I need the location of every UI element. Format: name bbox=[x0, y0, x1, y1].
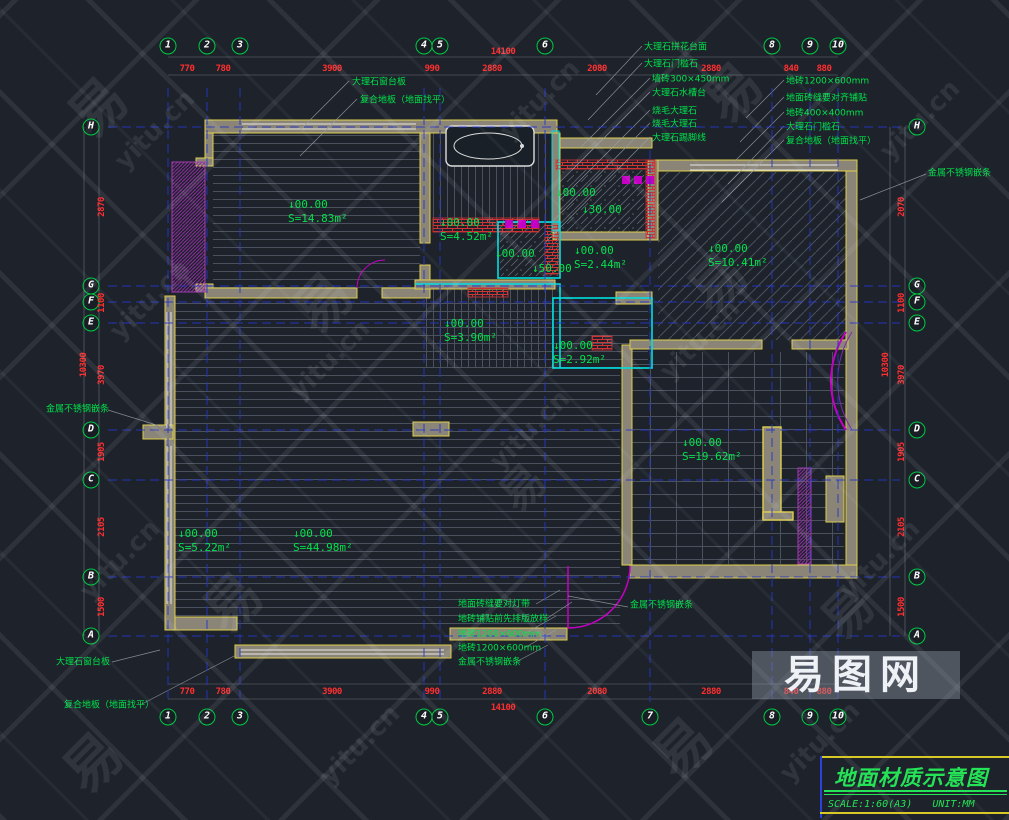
dimension-text: 14100 bbox=[491, 47, 516, 57]
grid-bubble: 2 bbox=[199, 709, 216, 726]
scale-label: SCALE:1:60(A3) bbox=[828, 799, 912, 810]
dimension-text: 2080 bbox=[587, 687, 607, 697]
dimension-text: 770 bbox=[180, 64, 195, 74]
room-label: ↓00.00 S=10.41m² bbox=[708, 242, 768, 271]
material-annotation: 烧毛大理石 bbox=[652, 104, 697, 117]
elevation-mark: ↓30.00 bbox=[582, 203, 622, 216]
dimension-text: 1100 bbox=[897, 293, 907, 313]
grid-bubble: 9 bbox=[802, 38, 819, 55]
dimension-text: 3970 bbox=[897, 365, 907, 385]
drawing-title: 地面材质示意图 bbox=[834, 762, 988, 792]
room-label: ↓00.00 S=4.52m² bbox=[440, 216, 493, 245]
grid-bubble: 1 bbox=[160, 38, 177, 55]
grid-bubble: D bbox=[909, 422, 926, 439]
room-elevation: ↓00.00 bbox=[444, 317, 497, 331]
title-underline bbox=[824, 790, 1007, 792]
material-annotation: 大理石窗台板 bbox=[352, 75, 406, 88]
dimension-text: 1500 bbox=[97, 597, 107, 617]
grid-bubble: 1 bbox=[160, 709, 177, 726]
title-block-info-row: SCALE:1:60(A3) UNIT:MM bbox=[828, 799, 1009, 810]
cad-canvas: 易yitu.cnyitu.cn易yitu.cnyitu.cn易yitu.cn易y… bbox=[0, 0, 1009, 820]
material-annotation: 金属不锈钢嵌条 bbox=[630, 598, 693, 611]
material-annotation: 复合地板（地面找平） bbox=[360, 93, 450, 106]
grid-bubble: 3 bbox=[232, 709, 249, 726]
material-annotation: 地砖铺贴前先排版放样 bbox=[458, 612, 548, 625]
grid-bubble: E bbox=[909, 315, 926, 332]
title-underline-2 bbox=[824, 794, 1007, 795]
room-label: ↓00.00 S=3.90m² bbox=[444, 317, 497, 346]
grid-bubble: 3 bbox=[232, 38, 249, 55]
material-annotation: 大理石拼花台面 bbox=[644, 40, 707, 53]
dimension-text: 2880 bbox=[482, 64, 502, 74]
material-annotation: 地面砖缝要对灯带 bbox=[458, 597, 530, 610]
room-elevation: ↓00.00 bbox=[293, 527, 353, 541]
grid-bubble: 9 bbox=[802, 709, 819, 726]
room-area: S=10.41m² bbox=[708, 256, 768, 270]
dimension-text: 990 bbox=[425, 687, 440, 697]
material-annotation: 墙砖300×450mm bbox=[652, 72, 729, 85]
material-annotation: 地面砖缝要对齐铺贴 bbox=[786, 91, 867, 104]
dimension-text: 770 bbox=[180, 687, 195, 697]
dimension-text: 14100 bbox=[491, 703, 516, 713]
dimension-text: 1500 bbox=[897, 597, 907, 617]
dimension-text: 10300 bbox=[881, 353, 891, 378]
material-annotation: 金属不锈钢嵌条 bbox=[458, 655, 521, 668]
grid-bubble: 6 bbox=[537, 709, 554, 726]
dimension-text: 1905 bbox=[897, 442, 907, 462]
dimension-text: 1100 bbox=[97, 293, 107, 313]
grid-bubble: A bbox=[83, 628, 100, 645]
title-block-bottom-line bbox=[820, 812, 1009, 814]
dimension-text: 2880 bbox=[482, 687, 502, 697]
grid-bubble: B bbox=[909, 569, 926, 586]
room-elevation: ↓00.00 bbox=[440, 216, 493, 230]
grid-bubble: C bbox=[83, 472, 100, 489]
room-area: S=44.98m² bbox=[293, 541, 353, 555]
material-annotation: 金属不锈钢嵌条 bbox=[928, 166, 991, 179]
dimension-text: 2070 bbox=[897, 197, 907, 217]
grid-bubble: 4 bbox=[416, 709, 433, 726]
room-elevation: ↓00.00 bbox=[178, 527, 231, 541]
elevation-mark: ↓00.00 bbox=[495, 247, 535, 260]
dimension-text: 2105 bbox=[897, 517, 907, 537]
title-block-top-line bbox=[820, 756, 1009, 758]
grid-bubble: A bbox=[909, 628, 926, 645]
elevation-mark: ↓50.00 bbox=[532, 262, 572, 275]
dimension-text: 990 bbox=[425, 64, 440, 74]
material-annotation: 大理石水槽台 bbox=[652, 86, 706, 99]
grid-bubble: H bbox=[83, 119, 100, 136]
grid-bubble: B bbox=[83, 569, 100, 586]
room-area: S=4.52m² bbox=[440, 230, 493, 244]
room-area: S=2.92m² bbox=[553, 353, 606, 367]
grid-bubble: F bbox=[909, 294, 926, 311]
grid-bubble: H bbox=[909, 119, 926, 136]
room-label: ↓00.00 S=2.44m² bbox=[574, 244, 627, 273]
material-annotation: 大理石门槛石 bbox=[786, 120, 840, 133]
grid-bubble: G bbox=[909, 278, 926, 295]
dimension-text: 3900 bbox=[322, 64, 342, 74]
dimension-text: 2080 bbox=[587, 64, 607, 74]
grid-bubble: 2 bbox=[199, 38, 216, 55]
room-elevation: ↓00.00 bbox=[682, 436, 742, 450]
grid-bubble: 6 bbox=[537, 38, 554, 55]
room-label: ↓00.00 S=5.22m² bbox=[178, 527, 231, 556]
grid-bubble: 10 bbox=[830, 38, 847, 55]
material-annotation: 大理石踢脚线 bbox=[652, 131, 706, 144]
room-label: ↓00.00 S=2.92m² bbox=[553, 339, 606, 368]
yitu-logo: 易图网 bbox=[752, 651, 960, 699]
grid-bubble: C bbox=[909, 472, 926, 489]
room-area: S=14.83m² bbox=[288, 212, 348, 226]
grid-bubble: 10 bbox=[830, 709, 847, 726]
grid-bubble: 8 bbox=[764, 38, 781, 55]
room-elevation: ↓00.00 bbox=[288, 198, 348, 212]
material-annotation: 地砖1200×600mm bbox=[458, 641, 541, 654]
material-annotation: 复合地板（地面找平） bbox=[786, 134, 876, 147]
grid-bubble: D bbox=[83, 422, 100, 439]
material-annotation: 复合地板（地面找平） bbox=[64, 698, 154, 711]
dimension-text: 10300 bbox=[79, 353, 89, 378]
room-elevation: ↓00.00 bbox=[708, 242, 768, 256]
title-block: 地面材质示意图 SCALE:1:60(A3) UNIT:MM bbox=[820, 756, 1009, 818]
dimension-text: 880 bbox=[817, 64, 832, 74]
material-annotation: 大理石窗台板 bbox=[56, 655, 110, 668]
unit-label: UNIT:MM bbox=[932, 799, 974, 810]
material-annotation: 烧毛大理石 bbox=[652, 117, 697, 130]
dimension-text: 2880 bbox=[701, 687, 721, 697]
dimension-text: 840 bbox=[784, 64, 799, 74]
material-annotation: 地砖400×400mm bbox=[786, 106, 863, 119]
floor-hatch-group bbox=[175, 133, 846, 628]
room-elevation: ↓00.00 bbox=[574, 244, 627, 258]
dimension-text: 2105 bbox=[97, 517, 107, 537]
dimension-text: 3900 bbox=[322, 687, 342, 697]
dimension-text: 3970 bbox=[97, 365, 107, 385]
room-area: S=19.62m² bbox=[682, 450, 742, 464]
room-label: ↓00.00 S=19.62m² bbox=[682, 436, 742, 465]
room-label: ↓00.00 S=14.83m² bbox=[288, 198, 348, 227]
elevation-mark: ↓00.00 bbox=[556, 186, 596, 199]
material-annotation: 金属不锈钢嵌条 bbox=[46, 402, 109, 415]
dimension-text: 2870 bbox=[97, 197, 107, 217]
grid-bubble: 5 bbox=[432, 38, 449, 55]
dimension-text: 1905 bbox=[97, 442, 107, 462]
room-area: S=3.90m² bbox=[444, 331, 497, 345]
grid-bubble: 7 bbox=[642, 709, 659, 726]
grid-bubble: 4 bbox=[416, 38, 433, 55]
dimension-text: 780 bbox=[216, 64, 231, 74]
grid-bubble: 5 bbox=[432, 709, 449, 726]
title-block-left-border bbox=[820, 756, 822, 818]
material-annotation: 地砖1200×600mm bbox=[786, 74, 869, 87]
room-label: ↓00.00 S=44.98m² bbox=[293, 527, 353, 556]
dimension-text: 780 bbox=[216, 687, 231, 697]
grid-bubble: 8 bbox=[764, 709, 781, 726]
room-elevation: ↓00.00 bbox=[553, 339, 606, 353]
room-area: S=5.22m² bbox=[178, 541, 231, 555]
material-annotation: 地砖1200×600mm bbox=[458, 627, 541, 640]
room-area: S=2.44m² bbox=[574, 258, 627, 272]
material-annotation: 大理石门槛石 bbox=[644, 57, 698, 70]
grid-bubble: E bbox=[83, 315, 100, 332]
